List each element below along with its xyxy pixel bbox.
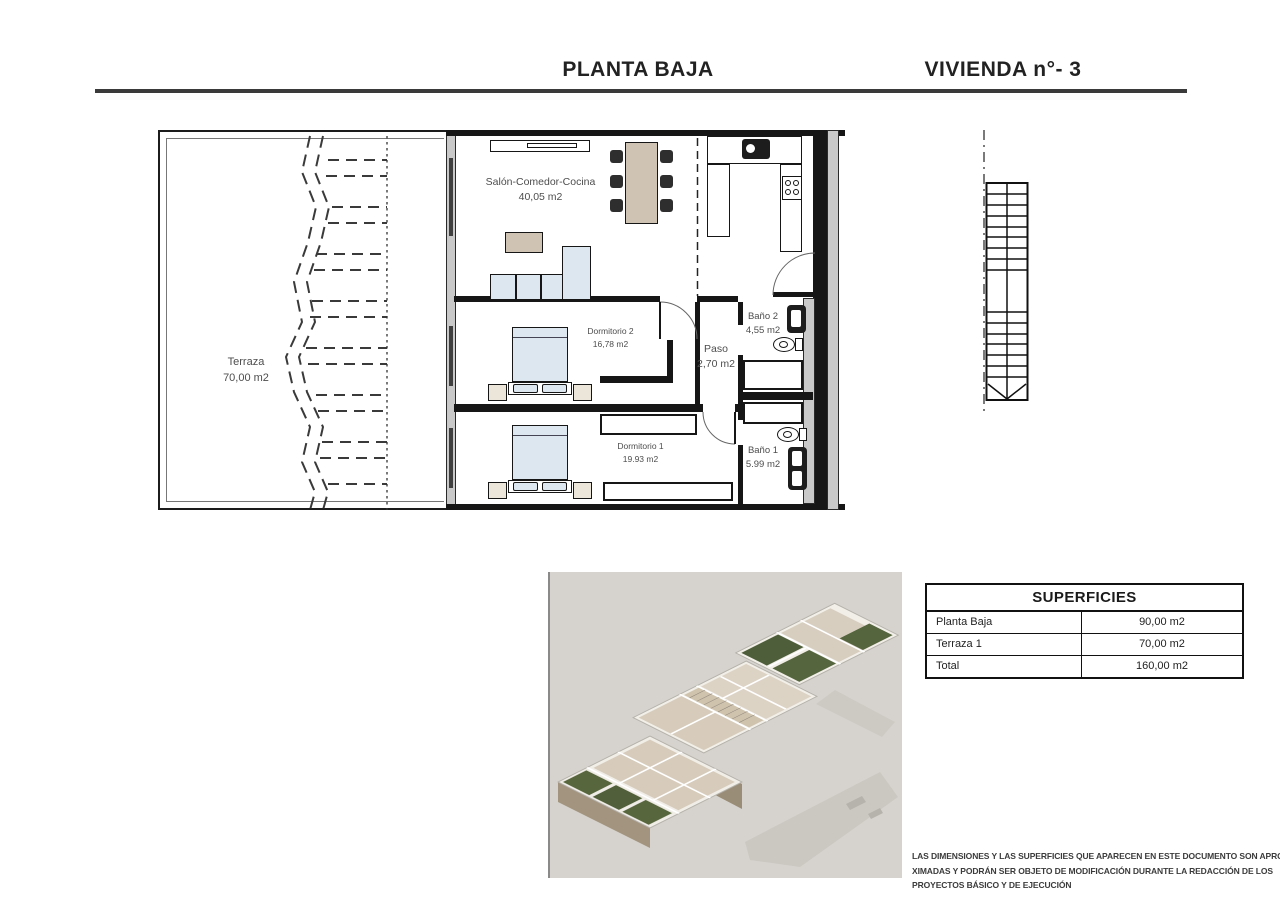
burner xyxy=(785,189,791,195)
render-illustration xyxy=(550,572,902,878)
page-title-right: VIVIENDA n°- 3 xyxy=(893,58,1113,82)
shower xyxy=(743,402,803,424)
room-label-dormitorio1: Dormitorio 1 19.93 m2 xyxy=(583,440,698,466)
terraza-area: Terraza 70,00 m2 xyxy=(158,130,455,510)
disclaimer-line: XIMADAS Y PODRÁN SER OBJETO DE MODIFICAC… xyxy=(912,864,1268,879)
wall xyxy=(827,130,839,510)
chair-icon xyxy=(610,199,623,212)
table-cell-label: Terraza 1 xyxy=(927,634,1082,655)
sofa-chaise xyxy=(562,246,591,300)
window-icon xyxy=(449,158,453,236)
sofa-seam xyxy=(515,275,517,299)
entry-door-leaf xyxy=(773,292,815,297)
table-row: Planta Baja 90,00 m2 xyxy=(927,612,1242,634)
burner xyxy=(793,189,799,195)
toilet-icon xyxy=(777,427,799,442)
room-label-salon: Salón-Comedor-Cocina 40,05 m2 xyxy=(483,175,598,205)
disclaimer-line: PROYECTOS BÁSICO Y DE EJECUCIÓN xyxy=(912,878,1268,893)
document-page: PLANTA BAJA VIVIENDA n°- 3 xyxy=(0,0,1280,905)
tv-icon xyxy=(527,143,577,148)
chair-icon xyxy=(610,150,623,163)
room-label-bano2: Baño 2 4,55 m2 xyxy=(735,310,791,338)
wall xyxy=(446,504,845,510)
table-title: SUPERFICIES xyxy=(927,585,1242,612)
sofa xyxy=(490,274,568,300)
wardrobe xyxy=(603,482,733,501)
window-icon xyxy=(449,326,453,386)
kitchen-peninsula xyxy=(707,164,730,237)
table-cell-value: 70,00 m2 xyxy=(1082,634,1242,655)
wall xyxy=(738,392,813,400)
toilet-bowl xyxy=(783,431,792,438)
basin xyxy=(791,310,801,327)
bed-fold xyxy=(513,435,567,436)
sink-basin xyxy=(746,144,755,153)
disclaimer-line: LAS DIMENSIONES Y LAS SUPERFICIES QUE AP… xyxy=(912,849,1268,864)
wall xyxy=(813,130,827,510)
room-label-terraza: Terraza 70,00 m2 xyxy=(186,354,306,386)
nightstand xyxy=(573,482,592,499)
terraza-boundary-dashes xyxy=(160,132,457,512)
nightstand xyxy=(573,384,592,401)
toilet-tank xyxy=(795,338,803,351)
dining-table xyxy=(625,142,658,224)
sink-icon xyxy=(742,139,770,159)
burner xyxy=(785,180,791,186)
bed xyxy=(512,425,568,480)
header-divider xyxy=(95,89,1187,93)
table-row: Terraza 1 70,00 m2 xyxy=(927,634,1242,656)
chair-icon xyxy=(660,150,673,163)
basin xyxy=(792,451,802,466)
burner xyxy=(793,180,799,186)
nightstand xyxy=(488,482,507,499)
table-cell-value: 90,00 m2 xyxy=(1082,612,1242,633)
stove-icon xyxy=(782,176,802,200)
basin xyxy=(792,471,802,486)
table-cell-value: 160,00 m2 xyxy=(1082,656,1242,677)
chair-icon xyxy=(660,199,673,212)
door-arc xyxy=(773,253,815,295)
chair-icon xyxy=(610,175,623,188)
chair-icon xyxy=(660,175,673,188)
pillow xyxy=(513,482,538,491)
building-3d-render xyxy=(548,572,900,878)
tv-sideboard xyxy=(490,140,590,152)
wardrobe xyxy=(600,414,697,435)
coffee-table xyxy=(505,232,543,253)
door-arc xyxy=(703,412,735,444)
table-cell-label: Total xyxy=(927,656,1082,677)
sofa-seam xyxy=(540,275,542,299)
table-cell-label: Planta Baja xyxy=(927,612,1082,633)
disclaimer-text: LAS DIMENSIONES Y LAS SUPERFICIES QUE AP… xyxy=(912,849,1268,893)
table-row: Total 160,00 m2 xyxy=(927,656,1242,677)
room-label-paso: Paso 2,70 m2 xyxy=(688,342,744,372)
desk xyxy=(600,376,673,383)
window-icon xyxy=(449,428,453,488)
toilet-bowl xyxy=(779,341,788,348)
nightstand xyxy=(488,384,507,401)
toilet-icon xyxy=(773,337,795,352)
wall xyxy=(697,296,738,302)
pillow xyxy=(542,384,567,393)
staircase-diagram xyxy=(980,130,1032,414)
wall xyxy=(454,404,703,412)
shower xyxy=(743,360,803,390)
toilet-tank xyxy=(799,428,807,441)
page-title-left: PLANTA BAJA xyxy=(518,58,758,82)
floor-plan: Terraza 70,00 m2 xyxy=(158,130,845,510)
room-label-bano1: Baño 1 5.99 m2 xyxy=(735,444,791,472)
room-label-dormitorio2: Dormitorio 2 16,78 m2 xyxy=(553,325,668,351)
pillow xyxy=(513,384,538,393)
superficies-table: SUPERFICIES Planta Baja 90,00 m2 Terraza… xyxy=(925,583,1244,679)
pillow xyxy=(542,482,567,491)
